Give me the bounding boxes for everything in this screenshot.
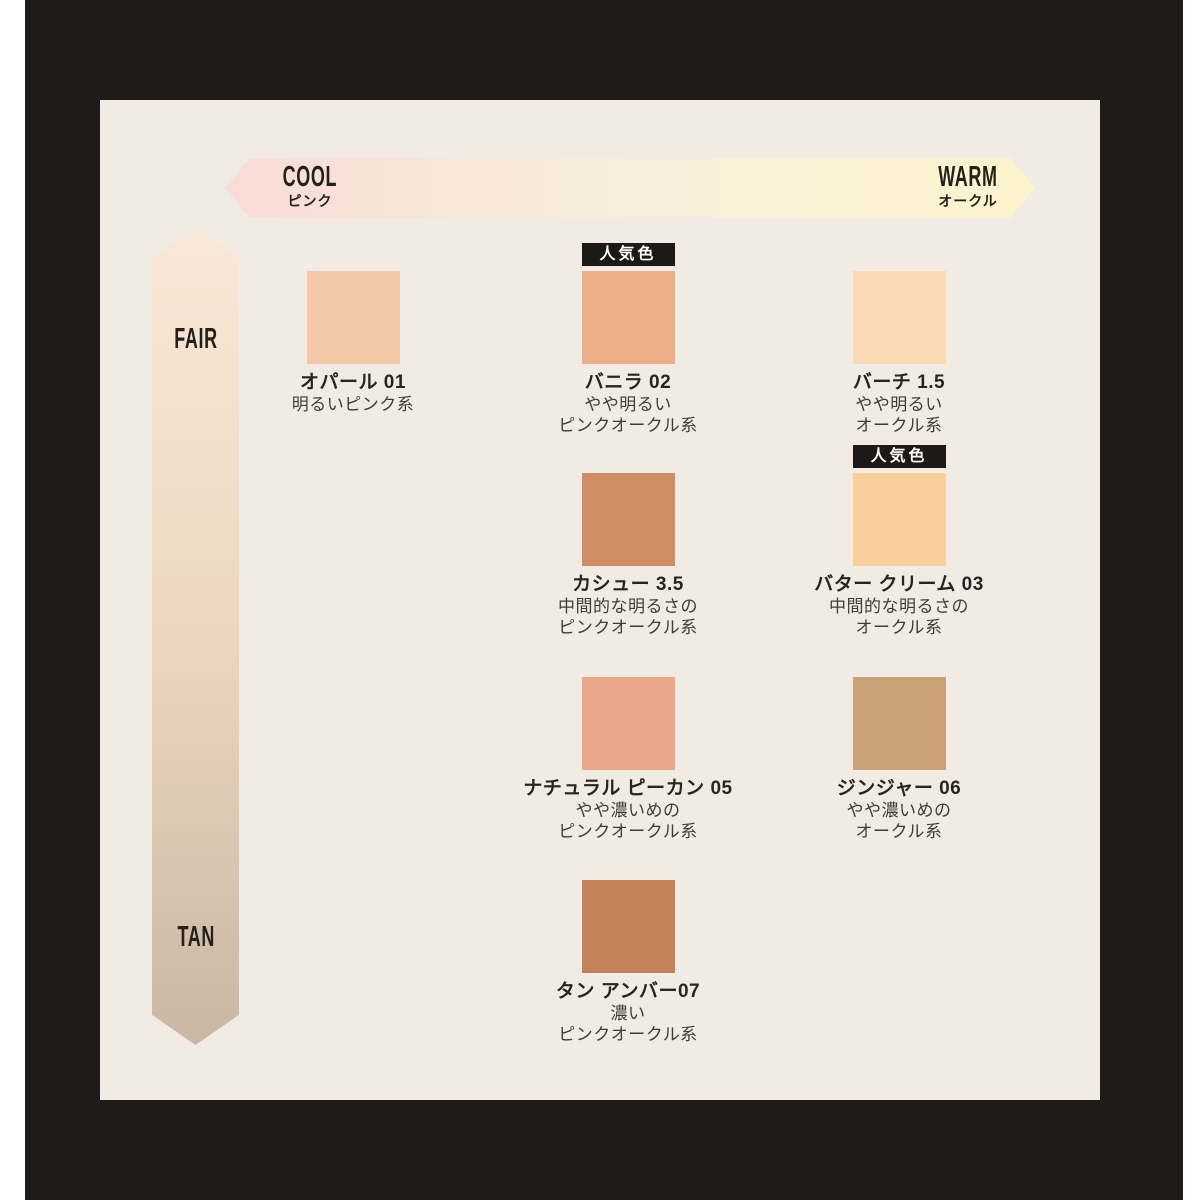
shade-desc-line: 明るいピンク系	[213, 394, 493, 415]
shade-desc-line: ピンクオークル系	[488, 821, 768, 842]
badge-row: 人気色	[759, 649, 1039, 677]
shade-swatch	[582, 677, 675, 770]
shade-desc-line: オークル系	[759, 821, 1039, 842]
cool-axis-label: COOL ピンク	[225, 163, 395, 210]
shade-card-tan-amber-07: 人気色 タン アンバー07 濃い ピンクオークル系	[488, 852, 768, 1045]
shade-desc-line: やや明るい	[759, 394, 1039, 415]
shade-name: オパール 01	[213, 372, 493, 394]
shade-card-cashew-3-5: 人気色 カシュー 3.5 中間的な明るさの ピンクオークル系	[488, 445, 768, 638]
shade-swatch	[582, 473, 675, 566]
warm-axis-label: WARM オークル	[883, 163, 1053, 210]
badge-row: 人気色	[759, 445, 1039, 473]
cool-label: COOL	[283, 163, 337, 192]
shade-swatch	[853, 473, 946, 566]
shade-name: カシュー 3.5	[488, 574, 768, 596]
badge-row: 人気色	[759, 243, 1039, 271]
shade-chart-panel: COOL ピンク WARM オークル FAIR TAN 人気色 オパール 01 …	[100, 100, 1100, 1100]
shade-desc-line: ピンクオークル系	[488, 617, 768, 638]
shade-card-ginger-06: 人気色 ジンジャー 06 やや濃いめの オークル系	[759, 649, 1039, 842]
badge-row: 人気色	[488, 649, 768, 677]
shade-desc-line: 中間的な明るさの	[488, 596, 768, 617]
shade-card-opal-01: 人気色 オパール 01 明るいピンク系	[213, 243, 493, 415]
shade-name: バーチ 1.5	[759, 372, 1039, 394]
shade-swatch	[307, 271, 400, 364]
shade-name: タン アンバー07	[488, 981, 768, 1003]
shade-desc-line: オークル系	[759, 415, 1039, 436]
shade-desc-line: ピンクオークル系	[488, 415, 768, 436]
tan-label: TAN	[177, 923, 214, 952]
shade-card-butter-cream-03: 人気色 バター クリーム 03 中間的な明るさの オークル系	[759, 445, 1039, 638]
shade-card-natural-pecan-05: 人気色 ナチュラル ピーカン 05 やや濃いめの ピンクオークル系	[488, 649, 768, 842]
shade-name: バター クリーム 03	[759, 574, 1039, 596]
shade-name: バニラ 02	[488, 372, 768, 394]
badge-row: 人気色	[488, 445, 768, 473]
popular-badge: 人気色	[853, 445, 946, 468]
shade-desc-line: 中間的な明るさの	[759, 596, 1039, 617]
shade-name: ジンジャー 06	[759, 778, 1039, 800]
shade-desc-line: オークル系	[759, 617, 1039, 638]
shade-desc-line: ピンクオークル系	[488, 1024, 768, 1045]
badge-row: 人気色	[488, 852, 768, 880]
shade-desc-line: やや明るい	[488, 394, 768, 415]
cool-sublabel: ピンク	[225, 193, 395, 210]
shade-chart: COOL ピンク WARM オークル FAIR TAN 人気色 オパール 01 …	[0, 0, 1200, 1200]
shade-card-vanilla-02: 人気色 バニラ 02 やや明るい ピンクオークル系	[488, 243, 768, 436]
shade-name: ナチュラル ピーカン 05	[488, 778, 768, 800]
shade-swatch	[582, 271, 675, 364]
shade-desc-line: やや濃いめの	[488, 800, 768, 821]
shade-desc-line: やや濃いめの	[759, 800, 1039, 821]
shade-desc-line: 濃い	[488, 1003, 768, 1024]
shade-swatch	[853, 677, 946, 770]
shade-swatch	[582, 880, 675, 973]
shade-card-birch-1-5: 人気色 バーチ 1.5 やや明るい オークル系	[759, 243, 1039, 436]
popular-badge: 人気色	[582, 243, 675, 266]
shade-swatch	[853, 271, 946, 364]
badge-row: 人気色	[213, 243, 493, 271]
warm-label: WARM	[938, 163, 997, 192]
badge-row: 人気色	[488, 243, 768, 271]
warm-sublabel: オークル	[883, 193, 1053, 210]
fair-label: FAIR	[174, 325, 217, 354]
tan-axis-label: TAN	[111, 923, 281, 952]
